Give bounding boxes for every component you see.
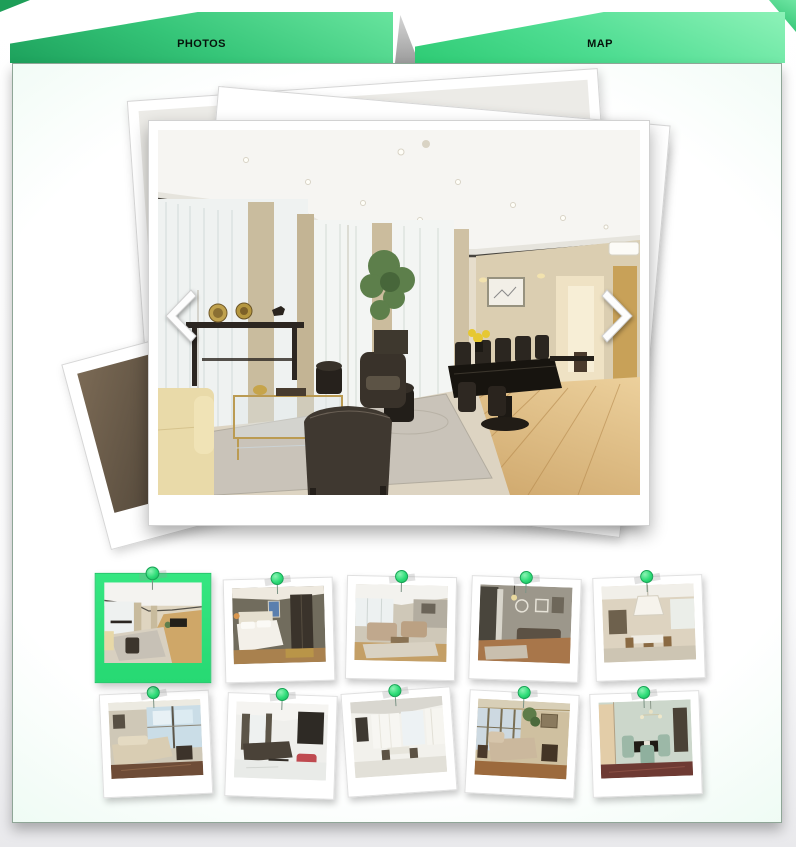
- pin-icon: [270, 572, 283, 585]
- page: { "tabs": [ {"label": "PHOTOS", "active"…: [0, 0, 796, 847]
- thumbnail-2[interactable]: [223, 577, 336, 684]
- thumbnail-7[interactable]: [224, 692, 338, 800]
- pin-icon: [520, 571, 533, 584]
- pin-icon: [640, 570, 653, 583]
- pin-icon: [146, 686, 160, 700]
- thumbnail-4[interactable]: [468, 575, 582, 683]
- thumbnail-6[interactable]: [99, 690, 213, 799]
- pin-icon: [388, 684, 402, 698]
- thumbnail-8[interactable]: [341, 686, 458, 797]
- thumbnail-image: [354, 584, 448, 662]
- pin-icon: [276, 688, 289, 701]
- thumbnail-3[interactable]: [345, 575, 457, 681]
- next-button[interactable]: [601, 288, 635, 344]
- thumbnail-image: [104, 582, 202, 663]
- thumbnail-image: [602, 583, 697, 662]
- thumbnail-image: [108, 699, 203, 779]
- thumbnail-image: [478, 584, 573, 663]
- thumbnail-image: [234, 701, 329, 780]
- tab-map[interactable]: MAP: [415, 12, 785, 63]
- thumbnail-10[interactable]: [589, 690, 703, 798]
- thumbnail-1-selected[interactable]: [95, 573, 212, 683]
- thumbnail-image: [232, 586, 326, 664]
- thumbnail-image: [599, 699, 694, 778]
- tab-photos-label: PHOTOS: [177, 38, 226, 50]
- main-photo: [148, 120, 650, 526]
- pin-icon: [637, 686, 650, 699]
- thumbnail-9[interactable]: [464, 689, 579, 799]
- ribbon-corner-left: [0, 0, 30, 12]
- tab-photos[interactable]: PHOTOS: [10, 12, 393, 63]
- chevron-right-icon: [601, 288, 635, 344]
- prev-button[interactable]: [163, 288, 197, 344]
- pin-icon: [146, 567, 160, 581]
- chevron-left-icon: [163, 288, 197, 344]
- thumbnail-5[interactable]: [592, 574, 706, 682]
- thumbnail-image: [474, 699, 570, 780]
- main-photo-image: [158, 130, 640, 495]
- pin-icon: [395, 570, 408, 583]
- thumbnail-image: [350, 696, 447, 778]
- pin-icon: [517, 686, 531, 700]
- tab-map-label: MAP: [587, 38, 613, 50]
